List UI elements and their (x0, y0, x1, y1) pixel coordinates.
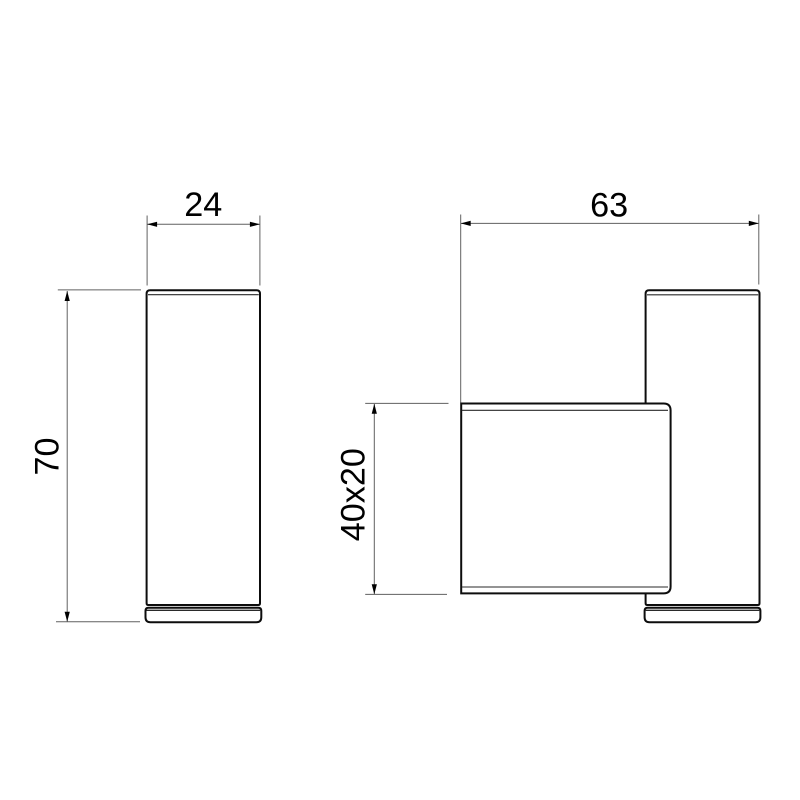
svg-text:63: 63 (590, 186, 628, 224)
svg-text:70: 70 (29, 437, 67, 475)
svg-text:40x20: 40x20 (334, 448, 372, 541)
svg-text:24: 24 (184, 186, 222, 224)
